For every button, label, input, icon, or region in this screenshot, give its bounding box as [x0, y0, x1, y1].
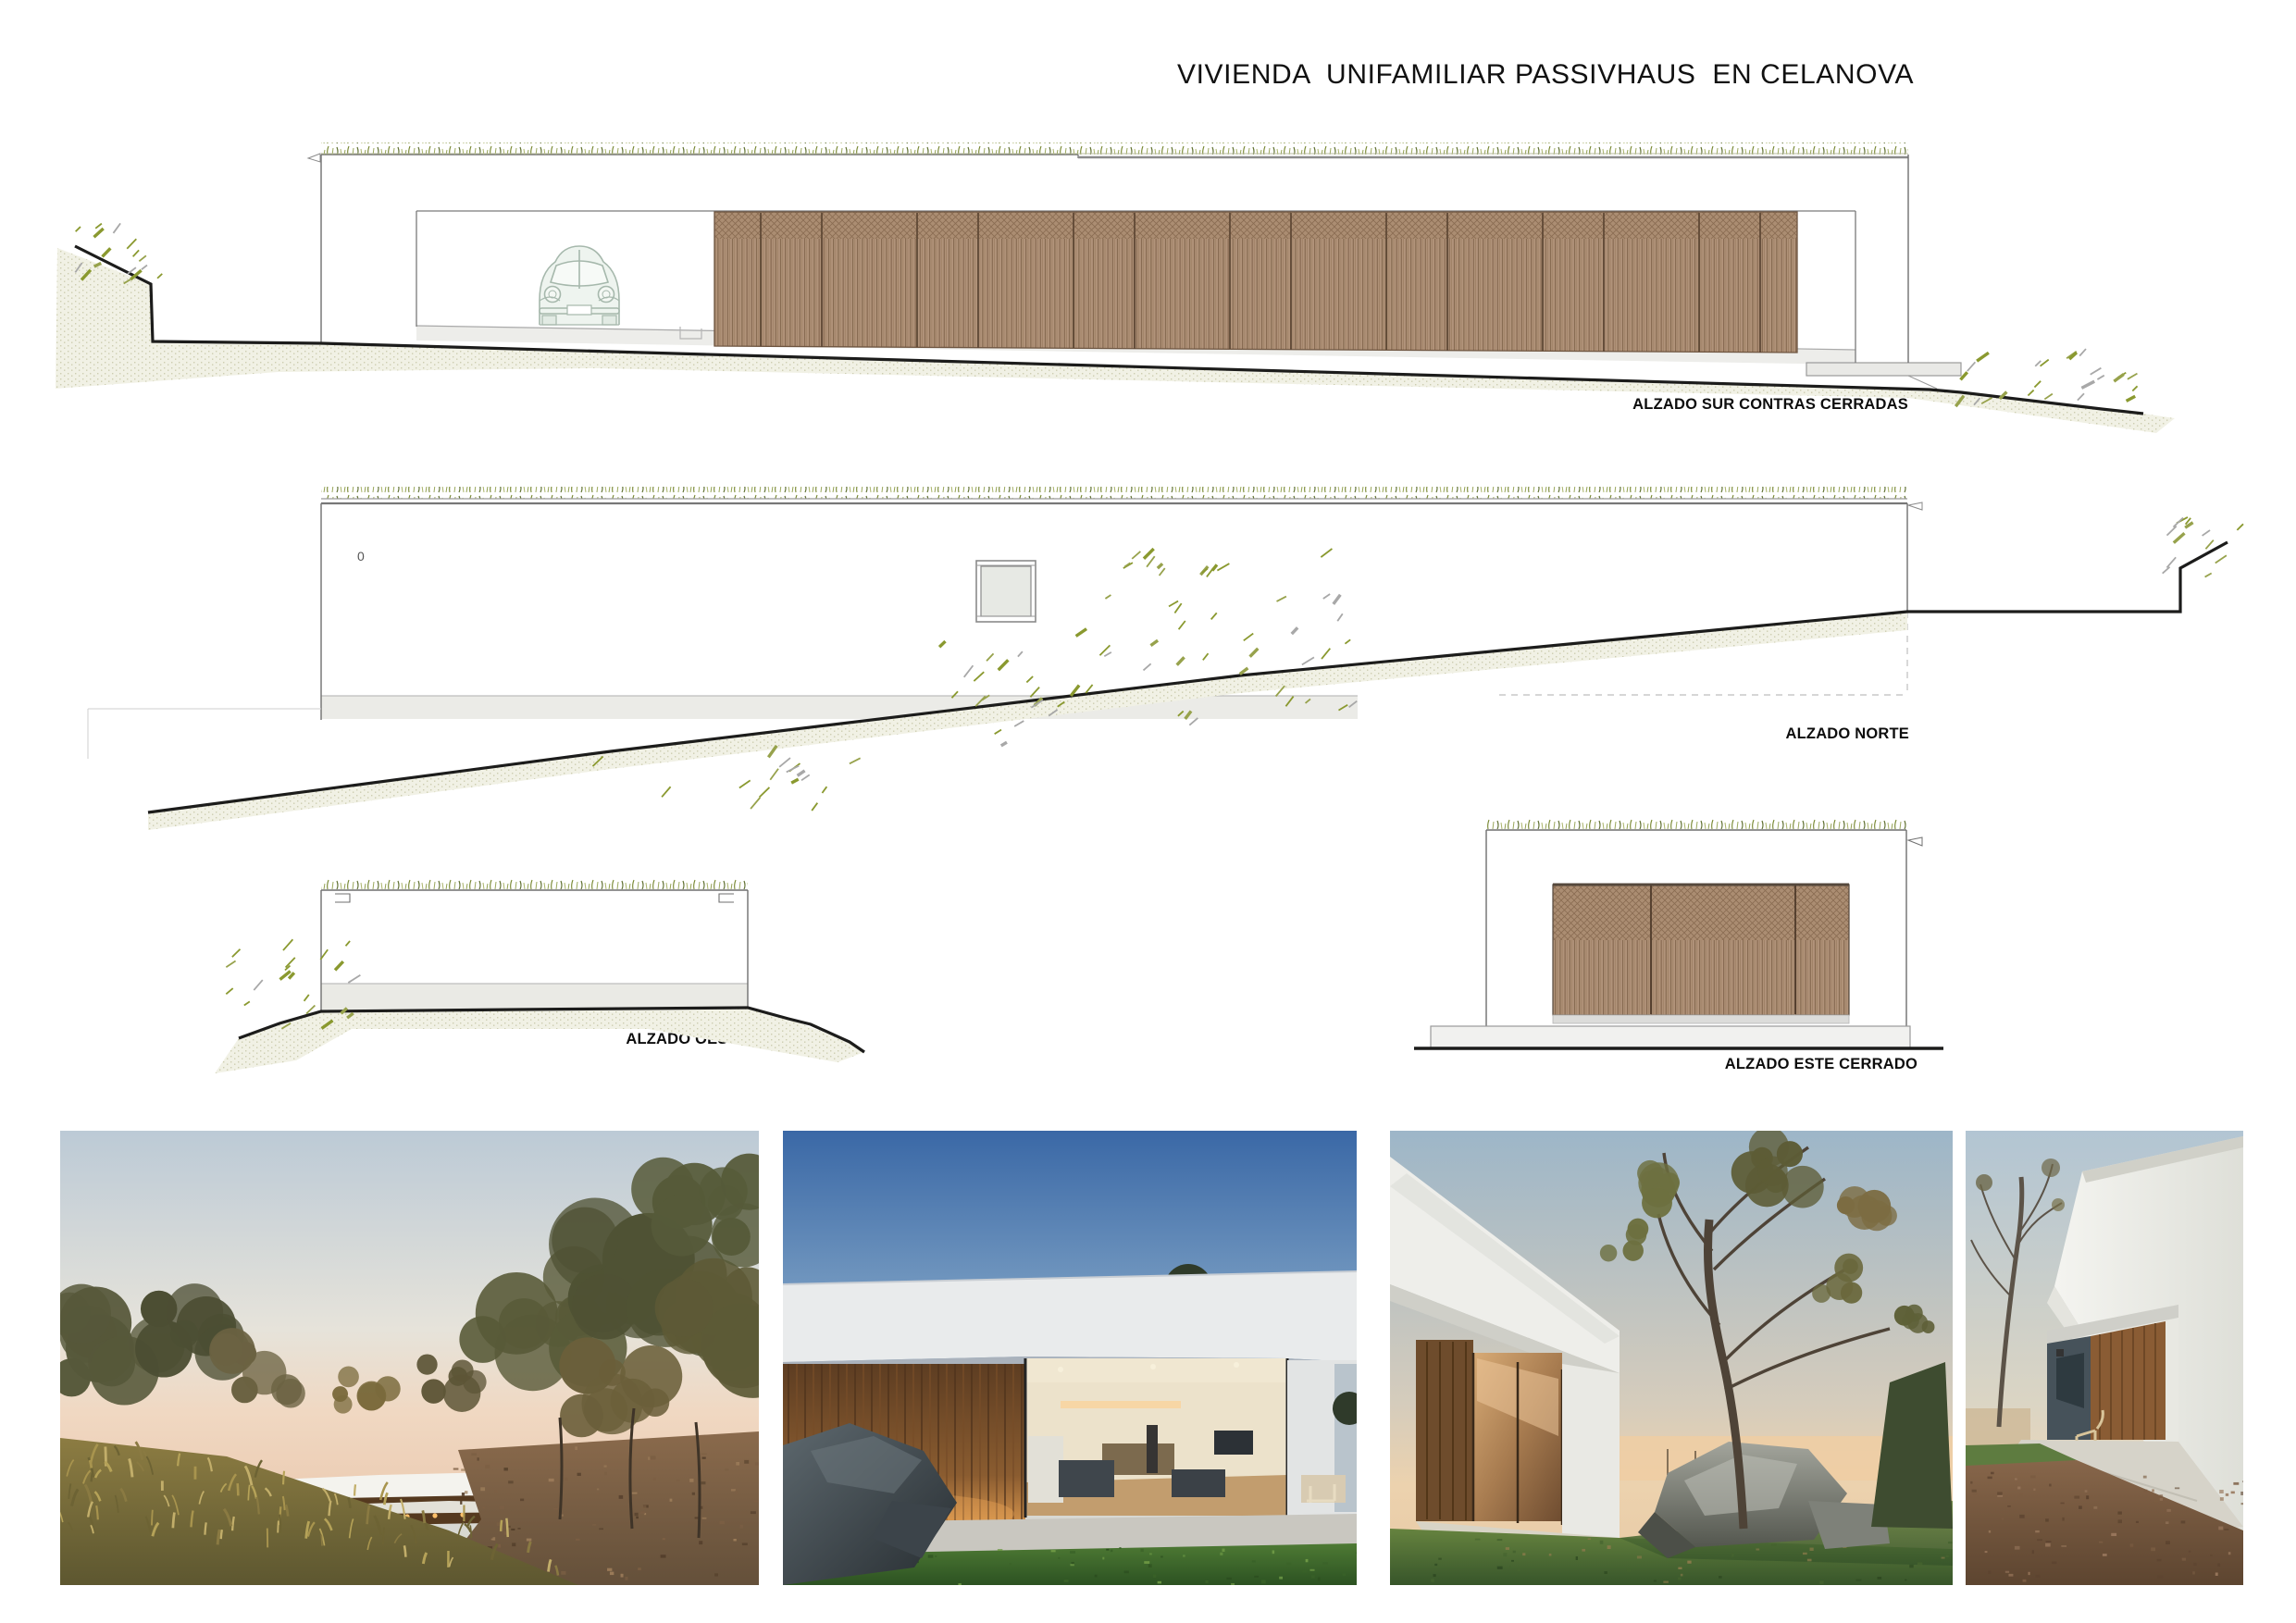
- green-roof-east: [1486, 818, 1906, 829]
- buried-outline: [88, 709, 321, 759]
- presentation-sheet: VIVIENDA UNIFAMILIAR PASSIVHAUS EN CELAN…: [0, 0, 2296, 1623]
- terrain-hatch-west: [215, 1008, 864, 1073]
- elevation-south-drawing: [56, 142, 2175, 433]
- window-north: [976, 561, 1036, 622]
- base-platform-east: [1431, 1026, 1910, 1048]
- timber-slat-screen-south: [714, 212, 1797, 353]
- plinth-band-north: [321, 696, 1358, 719]
- terrace-platform: [1806, 363, 1961, 376]
- elevation-west-drawing: [215, 878, 864, 1073]
- elevation-north-drawing: 0: [88, 487, 2243, 830]
- green-roof-south: [308, 142, 1908, 162]
- photo-dusk-hillside-ferns: [60, 1131, 759, 1585]
- photo-timber-recess: [1966, 1131, 2243, 1585]
- plinth-band-west: [321, 984, 748, 1010]
- photo-tree-and-boulder: [1390, 1131, 1953, 1585]
- level-mark: 0: [357, 549, 365, 564]
- photo-twilight-living-room: [783, 1131, 1357, 1585]
- white-fascia: [783, 1271, 1357, 1362]
- elevation-east-drawing: [1414, 818, 1943, 1048]
- glazed-living-room: [1025, 1358, 1287, 1519]
- terrain-hatch-left: [56, 248, 592, 389]
- timber-panel-east: [1553, 885, 1849, 1023]
- green-roof-west: [321, 878, 748, 889]
- car-beetle-drawing: [540, 246, 619, 325]
